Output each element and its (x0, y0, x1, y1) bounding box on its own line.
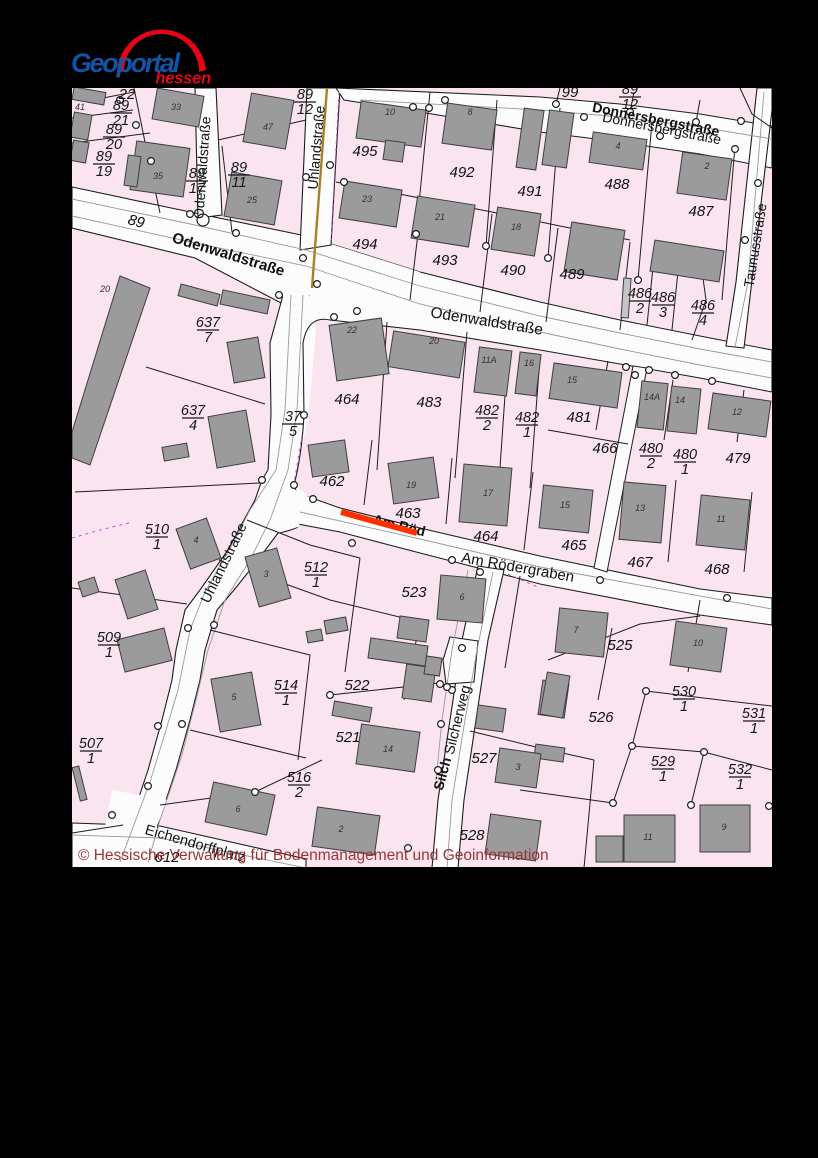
svg-text:9: 9 (721, 822, 726, 832)
svg-text:4: 4 (615, 141, 620, 151)
svg-text:33: 33 (171, 102, 181, 112)
svg-text:41: 41 (75, 102, 85, 112)
svg-text:463: 463 (395, 505, 421, 522)
svg-text:527: 527 (471, 750, 497, 767)
svg-text:525: 525 (607, 637, 633, 654)
svg-text:20: 20 (99, 284, 110, 294)
svg-text:10: 10 (693, 638, 703, 648)
svg-text:5: 5 (289, 424, 298, 440)
svg-text:89: 89 (231, 160, 247, 176)
svg-text:490: 490 (500, 262, 526, 279)
svg-text:1: 1 (681, 462, 689, 478)
svg-text:89: 89 (189, 166, 205, 182)
svg-text:11A: 11A (481, 355, 496, 365)
svg-text:19: 19 (406, 480, 416, 490)
svg-text:1: 1 (750, 721, 758, 737)
svg-text:2: 2 (482, 418, 491, 434)
svg-text:488: 488 (604, 176, 630, 193)
svg-text:10: 10 (385, 107, 395, 117)
svg-text:482: 482 (515, 410, 539, 426)
svg-text:491: 491 (517, 183, 542, 200)
svg-text:19: 19 (96, 164, 112, 180)
svg-text:486: 486 (691, 298, 716, 314)
svg-text:7: 7 (204, 330, 213, 346)
svg-text:23: 23 (361, 194, 372, 204)
svg-text:20: 20 (428, 336, 439, 346)
svg-text:12: 12 (732, 407, 742, 417)
svg-text:2: 2 (294, 785, 303, 801)
svg-text:494: 494 (352, 236, 377, 253)
svg-text:1: 1 (523, 425, 531, 441)
svg-text:466: 466 (592, 440, 618, 457)
svg-text:464: 464 (473, 528, 498, 545)
svg-text:480: 480 (673, 447, 697, 463)
svg-text:523: 523 (401, 584, 427, 601)
svg-text:509: 509 (97, 630, 121, 646)
svg-text:514: 514 (274, 678, 298, 694)
svg-text:35: 35 (153, 171, 164, 181)
svg-text:489: 489 (559, 266, 585, 283)
svg-text:18: 18 (511, 222, 521, 232)
svg-text:480: 480 (639, 441, 663, 457)
svg-text:14: 14 (383, 744, 393, 754)
svg-text:47: 47 (263, 122, 274, 132)
svg-text:479: 479 (725, 450, 751, 467)
svg-text:493: 493 (432, 252, 458, 269)
svg-text:529: 529 (651, 754, 675, 770)
svg-text:6: 6 (459, 592, 464, 602)
svg-text:1: 1 (659, 769, 667, 785)
svg-text:1: 1 (736, 777, 744, 793)
svg-text:6: 6 (235, 804, 240, 814)
svg-text:531: 531 (742, 706, 766, 722)
svg-text:17: 17 (189, 181, 206, 197)
svg-text:13: 13 (635, 503, 645, 513)
svg-text:12: 12 (622, 97, 638, 113)
svg-text:11: 11 (231, 175, 246, 191)
svg-text:1: 1 (153, 537, 161, 553)
svg-text:528: 528 (459, 827, 485, 844)
svg-text:15: 15 (567, 375, 578, 385)
svg-text:© Hessische Verwaltung für Bod: © Hessische Verwaltung für Bodenmanageme… (78, 847, 549, 864)
svg-text:99: 99 (562, 88, 579, 101)
svg-text:510: 510 (145, 522, 169, 538)
svg-text:14: 14 (675, 395, 685, 405)
svg-text:492: 492 (449, 164, 475, 181)
svg-text:526: 526 (588, 709, 614, 726)
svg-text:89: 89 (113, 98, 129, 114)
svg-text:12: 12 (297, 102, 313, 118)
svg-text:1: 1 (312, 575, 320, 591)
svg-text:468: 468 (704, 561, 730, 578)
svg-text:11: 11 (716, 514, 725, 524)
svg-text:637: 637 (196, 315, 221, 331)
svg-text:11: 11 (643, 832, 652, 842)
svg-text:17: 17 (483, 488, 494, 498)
svg-text:37: 37 (285, 409, 302, 425)
svg-text:465: 465 (561, 537, 587, 554)
svg-text:3: 3 (659, 305, 667, 321)
svg-text:21: 21 (434, 212, 445, 222)
svg-text:3: 3 (515, 762, 520, 772)
svg-text:1: 1 (282, 693, 290, 709)
svg-text:512: 512 (304, 560, 328, 576)
svg-text:22: 22 (346, 325, 357, 335)
svg-text:2: 2 (635, 301, 644, 317)
svg-text:530: 530 (672, 684, 696, 700)
svg-text:2: 2 (337, 824, 343, 834)
svg-text:2: 2 (703, 161, 709, 171)
svg-text:16: 16 (524, 358, 534, 368)
svg-text:4: 4 (189, 418, 197, 434)
svg-text:8: 8 (467, 107, 472, 117)
svg-text:1: 1 (87, 751, 95, 767)
svg-text:25: 25 (246, 195, 258, 205)
svg-text:516: 516 (287, 770, 312, 786)
svg-text:1: 1 (680, 699, 688, 715)
svg-text:89: 89 (297, 88, 313, 103)
svg-text:532: 532 (728, 762, 752, 778)
svg-text:3: 3 (263, 569, 268, 579)
svg-text:89: 89 (106, 122, 122, 138)
svg-text:507: 507 (79, 736, 104, 752)
svg-text:4: 4 (699, 313, 707, 329)
svg-text:521: 521 (335, 729, 360, 746)
svg-text:1: 1 (105, 645, 113, 661)
svg-text:89: 89 (96, 149, 112, 165)
svg-text:495: 495 (352, 143, 378, 160)
svg-text:15: 15 (560, 500, 571, 510)
svg-text:464: 464 (334, 391, 359, 408)
svg-text:483: 483 (416, 394, 442, 411)
svg-text:637: 637 (181, 403, 206, 419)
svg-text:486: 486 (628, 286, 653, 302)
svg-text:486: 486 (651, 290, 676, 306)
svg-text:482: 482 (475, 403, 499, 419)
svg-text:462: 462 (319, 473, 345, 490)
svg-text:481: 481 (566, 409, 591, 426)
svg-text:522: 522 (344, 677, 370, 694)
svg-text:14A: 14A (644, 392, 660, 402)
svg-text:467: 467 (627, 554, 653, 571)
svg-text:2: 2 (646, 456, 655, 472)
svg-text:487: 487 (688, 203, 714, 220)
svg-text:4: 4 (193, 535, 198, 545)
svg-text:hessen: hessen (155, 70, 211, 87)
